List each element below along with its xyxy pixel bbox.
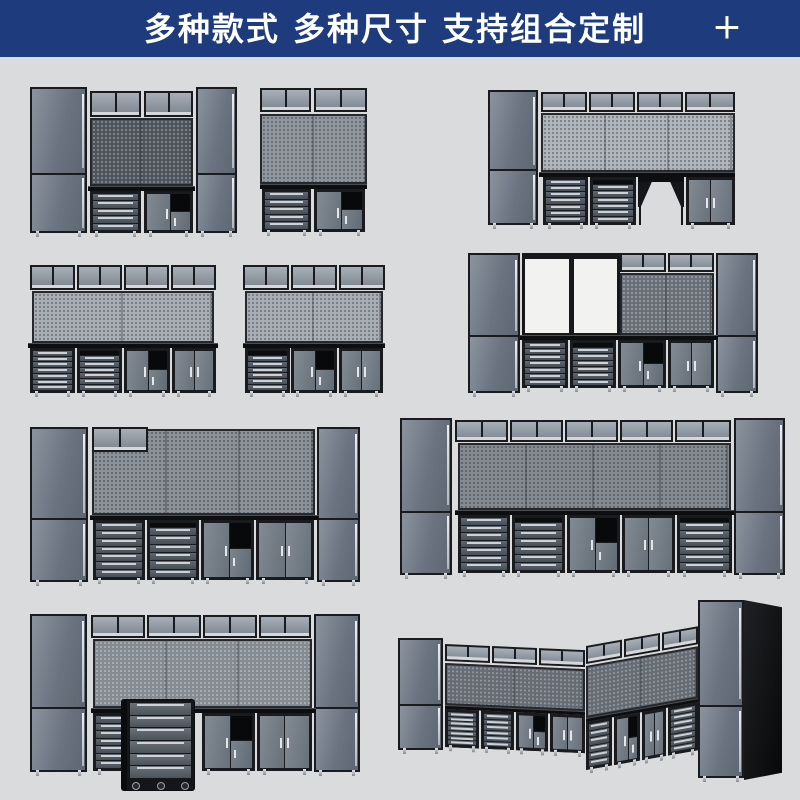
leveling-foot (548, 223, 551, 229)
cubby-cabinet (144, 191, 193, 233)
leveling-foot (633, 759, 636, 766)
leveling-foot (706, 386, 709, 392)
wall-cabinet (147, 615, 201, 638)
wall-cabinet (620, 253, 666, 272)
drawer (593, 204, 633, 209)
wall-cabinet (339, 265, 385, 290)
leveling-foot (530, 223, 533, 229)
cabinet-door (316, 370, 334, 390)
wall-cabinet (259, 615, 311, 638)
cabinet-door (736, 420, 783, 511)
wall-cabinet (541, 92, 587, 112)
drawer (93, 209, 138, 215)
cabinet-door (230, 549, 251, 577)
drawer (33, 385, 72, 390)
leveling-foot (520, 748, 523, 754)
leveling-foot (36, 231, 39, 237)
cabinet-door (32, 429, 86, 518)
open-shelf (629, 716, 637, 737)
drawer (525, 361, 565, 366)
drawer-cabinet (590, 177, 636, 225)
leveling-foot (449, 745, 452, 751)
wall-cabinet (675, 420, 731, 442)
cabinet-door (294, 351, 315, 390)
drawer-cabinet (677, 515, 732, 573)
leveling-foot (667, 571, 670, 577)
leveling-foot (554, 750, 557, 756)
cabinet-door (700, 707, 742, 776)
cabinet-door (400, 706, 441, 748)
drawer (150, 553, 196, 560)
cabinet-door (629, 737, 637, 760)
tool-rail (573, 343, 613, 347)
leveling-foot (267, 230, 270, 236)
cabinet-door (175, 351, 194, 390)
cabinet-door (553, 717, 567, 750)
two-door-cabinet (256, 520, 314, 580)
cabinet-door (700, 602, 742, 705)
leveling-foot (98, 578, 101, 584)
cabinet-door (718, 337, 756, 391)
drawer-cabinet (586, 717, 612, 770)
product-photo-combo-6 (468, 250, 758, 400)
leveling-foot (723, 571, 726, 577)
leveling-foot (660, 754, 663, 761)
leveling-foot (82, 391, 85, 397)
drawer (80, 379, 119, 384)
pegboard (32, 291, 214, 343)
drawer (265, 192, 308, 199)
drawer (515, 539, 562, 546)
leveling-foot (739, 573, 742, 579)
two-door-cabinet (339, 348, 383, 393)
product-photo-combo-5 (243, 265, 385, 399)
drawer (546, 180, 585, 185)
drawer (593, 198, 633, 203)
wall-cabinet (171, 265, 216, 290)
cubby-cabinet (614, 712, 640, 765)
cabinet-door (692, 343, 712, 385)
drawer (593, 191, 633, 196)
drawer (96, 570, 142, 577)
drawer-cabinet (30, 348, 75, 393)
two-door-cabinet (668, 340, 714, 388)
drawer (546, 205, 585, 210)
drawer (150, 570, 196, 577)
drawer (525, 374, 565, 379)
two-door-cabinet (622, 515, 675, 573)
leveling-foot (78, 231, 81, 237)
leveling-foot (645, 757, 648, 764)
drawer (96, 562, 142, 569)
cabinet-door (32, 89, 85, 173)
cabinet-door (644, 364, 663, 385)
leveling-foot (683, 571, 686, 577)
leveling-foot (444, 573, 447, 579)
drawer (573, 348, 613, 353)
drawer (33, 368, 72, 373)
cart-drawer (130, 703, 191, 715)
drawer (150, 536, 196, 543)
drawer (150, 545, 196, 552)
drawer (150, 528, 196, 535)
two-door-cabinet (550, 714, 585, 754)
cabinet-door (402, 513, 450, 573)
cabinet-door (402, 420, 450, 511)
leveling-foot (627, 571, 630, 577)
product-photo-combo-8 (400, 418, 785, 582)
caster-wheel (157, 782, 165, 790)
drawer-cabinet (570, 340, 616, 388)
drawer (573, 380, 613, 385)
cabinet-door (470, 255, 518, 335)
cubby-cabinet (516, 712, 548, 751)
drawer (150, 561, 196, 568)
cabinet-door (570, 518, 595, 570)
drawer (248, 385, 287, 390)
drawer (248, 379, 287, 384)
cabinet-door (171, 212, 190, 230)
wall-cabinet (243, 265, 289, 290)
leveling-foot (322, 580, 325, 586)
pegboard (93, 639, 312, 708)
cabinet-door (342, 351, 361, 390)
leveling-foot (250, 391, 253, 397)
leveling-foot (98, 769, 101, 775)
cabinet-door (319, 520, 358, 580)
cubby-cabinet (202, 713, 255, 771)
pegboard (541, 113, 735, 172)
wall-cabinet (492, 646, 537, 665)
cabinet-door (568, 717, 582, 750)
product-photo-combo-10-corner (395, 598, 790, 794)
drawer-cabinet (90, 191, 141, 233)
leveling-foot (590, 767, 593, 774)
cabinet-door (198, 89, 235, 173)
drawer (93, 224, 138, 230)
drawer (265, 200, 308, 207)
tall-cabinet (716, 253, 758, 393)
pegboard (458, 443, 731, 510)
two-door-cabinet (172, 348, 216, 393)
roller-cart (122, 700, 194, 790)
wall-cabinet (314, 88, 367, 112)
cabinet-door (259, 523, 285, 577)
tall-cabinet (30, 614, 87, 772)
drawer (248, 373, 287, 378)
cabinet-door (718, 255, 756, 335)
drawer (546, 217, 585, 222)
cabinet-door (32, 520, 86, 580)
leveling-foot (229, 231, 232, 237)
open-shelf (534, 716, 545, 732)
leveling-foot (78, 770, 81, 776)
leveling-foot (185, 231, 188, 237)
wall-cabinet (77, 265, 122, 290)
drawer (93, 216, 138, 222)
wall-cabinet (565, 420, 618, 442)
cubby-cabinet (567, 515, 620, 573)
pegboard (445, 663, 585, 711)
leveling-foot (177, 391, 180, 397)
drawer (96, 539, 142, 546)
caster-wheel (181, 782, 189, 790)
leveling-foot (750, 391, 753, 397)
tool-rail (515, 518, 562, 522)
open-shelf (644, 343, 663, 363)
drawer (33, 374, 72, 379)
open-shelf (231, 716, 252, 740)
wall-cabinet (203, 615, 257, 638)
drawer (96, 523, 142, 530)
leveling-foot (191, 578, 194, 584)
leveling-foot (149, 231, 152, 237)
product-image: 多种款式 多种尺寸 支持组合定制 + (0, 0, 800, 800)
cabinet-door (319, 429, 358, 518)
leveling-foot (357, 230, 360, 236)
tall-cabinet (30, 427, 88, 582)
bench-gap (638, 177, 684, 225)
drawer (80, 373, 119, 378)
leveling-foot (691, 749, 694, 756)
open-shelf (230, 523, 251, 548)
tool-rail (593, 180, 633, 184)
leveling-foot (403, 748, 406, 754)
drawer-cabinet (77, 348, 122, 393)
open-bay (574, 259, 618, 333)
cabinet-door (519, 715, 533, 748)
drawer-cabinet (543, 177, 588, 225)
drawer (461, 526, 507, 533)
leveling-foot (344, 391, 347, 397)
drawer (525, 368, 565, 373)
cart-drawer (130, 741, 191, 753)
cabinet-door (285, 716, 309, 768)
cabinet-door (617, 718, 628, 762)
cabinet-side-panel (744, 600, 782, 780)
tool-rail (80, 351, 119, 355)
cabinet-door (342, 210, 362, 229)
leveling-foot (605, 764, 608, 771)
drawer (461, 563, 507, 570)
drawer-cabinet (458, 515, 510, 573)
wall-cabinet (445, 644, 490, 663)
drawer (80, 385, 119, 390)
product-photo-combo-3 (488, 90, 735, 233)
drawer (593, 185, 633, 190)
drawer (573, 354, 613, 359)
leveling-foot (463, 571, 466, 577)
pegboard (260, 114, 367, 184)
leveling-foot (162, 391, 165, 397)
drawer (573, 373, 613, 378)
cubby-cabinet (291, 348, 337, 393)
wall-cabinet (30, 265, 75, 290)
leveling-foot (247, 769, 250, 775)
leveling-foot (721, 391, 724, 397)
wall-cabinet (91, 615, 145, 638)
drawer (680, 539, 729, 546)
open-shelf (342, 192, 362, 209)
drawer (525, 343, 565, 348)
tall-cabinet (488, 90, 538, 225)
drawer-cabinet (445, 709, 479, 748)
cabinet-door (645, 713, 654, 756)
cabinet-door (736, 513, 783, 573)
cubby-cabinet (314, 189, 365, 232)
cabinet-collage (0, 0, 800, 800)
drawer (265, 215, 308, 222)
open-shelf (316, 351, 334, 369)
leveling-foot (557, 571, 560, 577)
wall-cabinet (589, 92, 635, 112)
leveling-foot (575, 386, 578, 392)
leveling-foot (305, 578, 308, 584)
drawer-cabinet (481, 711, 514, 750)
leveling-foot (36, 580, 39, 586)
drawer-cabinet (522, 340, 568, 388)
drawer (265, 207, 308, 214)
open-frame (522, 253, 620, 336)
leveling-foot (137, 578, 140, 584)
open-shelf (596, 518, 617, 542)
drawer (593, 210, 633, 215)
cabinet-door (490, 171, 536, 223)
cabinet-door (317, 192, 341, 229)
drawer (515, 531, 562, 538)
leveling-foot (628, 223, 631, 229)
leveling-foot (303, 230, 306, 236)
tool-rail (680, 518, 729, 522)
leveling-foot (703, 776, 706, 782)
drawer (515, 523, 562, 530)
drawer (515, 555, 562, 562)
cabinet-door (534, 732, 545, 748)
drawer (248, 356, 287, 361)
tall-cabinet (698, 600, 744, 778)
leveling-foot (507, 748, 510, 754)
drawer (546, 186, 585, 191)
leveling-foot (36, 770, 39, 776)
bench-leg (639, 182, 641, 225)
drawer (680, 547, 729, 554)
leveling-foot (541, 749, 544, 755)
leveling-foot (79, 580, 82, 586)
pegboard (245, 291, 383, 343)
cubby-cabinet (124, 348, 170, 393)
drawer (680, 523, 729, 530)
leveling-foot (95, 231, 98, 237)
two-door-cabinet (686, 177, 735, 225)
drawer (461, 548, 507, 555)
drawer (248, 362, 287, 367)
tall-cabinet (30, 87, 87, 233)
leveling-foot (502, 571, 505, 577)
drawer-cabinet (668, 702, 698, 755)
leveling-foot (352, 580, 355, 586)
cabinet-door (490, 92, 536, 169)
leveling-foot (493, 223, 496, 229)
cubby-cabinet (201, 520, 254, 580)
leveling-foot (473, 391, 476, 397)
wall-cabinet (124, 265, 169, 290)
leveling-foot (114, 391, 117, 397)
leveling-foot (208, 391, 211, 397)
wall-cabinet (637, 92, 683, 112)
leveling-foot (623, 386, 626, 392)
drawer (448, 740, 476, 745)
tool-rail (150, 523, 196, 527)
cabinet-wing (445, 644, 585, 754)
leveling-foot (206, 578, 209, 584)
cabinet-door (362, 351, 381, 390)
wall-cabinet (144, 91, 193, 117)
leveling-foot (319, 770, 322, 776)
drawer (96, 554, 142, 561)
drawer (546, 211, 585, 216)
leveling-foot (578, 751, 581, 757)
tall-cabinet (468, 253, 520, 393)
cabinet-door (205, 716, 230, 768)
cart-drawer (130, 766, 191, 778)
cabinet-door (689, 180, 710, 222)
cabinet-door (147, 194, 170, 230)
wall-cabinet (92, 427, 148, 452)
wall-cabinet (668, 253, 714, 272)
leveling-foot (201, 231, 204, 237)
casters (130, 779, 191, 790)
bench-top (638, 177, 684, 182)
leveling-foot (303, 769, 306, 775)
product-photo-combo-4 (28, 265, 218, 399)
wall-cabinet (260, 88, 311, 112)
cabinet-door (204, 523, 229, 577)
drawer (573, 361, 613, 366)
drawer (461, 533, 507, 540)
drawer (461, 518, 507, 525)
drawer (525, 349, 565, 354)
leveling-foot (329, 391, 332, 397)
leveling-foot (612, 571, 615, 577)
wall-cabinet (291, 265, 337, 290)
leveling-foot (375, 391, 378, 397)
leveling-foot (736, 776, 739, 782)
cabinet-door (198, 175, 235, 231)
drawer (33, 357, 72, 362)
leveling-foot (319, 230, 322, 236)
cabinet-door (32, 709, 85, 770)
drawer (80, 356, 119, 361)
leveling-foot (673, 386, 676, 392)
drawer (265, 222, 308, 229)
cabinet-door (286, 523, 312, 577)
leveling-foot (527, 386, 530, 392)
product-photo-combo-9 (30, 612, 360, 790)
leveling-foot (352, 770, 355, 776)
cart-drawer (130, 754, 191, 766)
cabinet-door (32, 616, 85, 707)
leveling-foot (672, 752, 675, 759)
caster-wheel (132, 782, 140, 790)
drawer (96, 531, 142, 538)
drawer (680, 563, 729, 570)
wall-cabinet (510, 420, 563, 442)
cabinet-door (260, 716, 284, 768)
drawer (80, 368, 119, 373)
cabinet-door (596, 543, 617, 570)
bench-leg (681, 182, 683, 225)
drawer (593, 217, 633, 222)
